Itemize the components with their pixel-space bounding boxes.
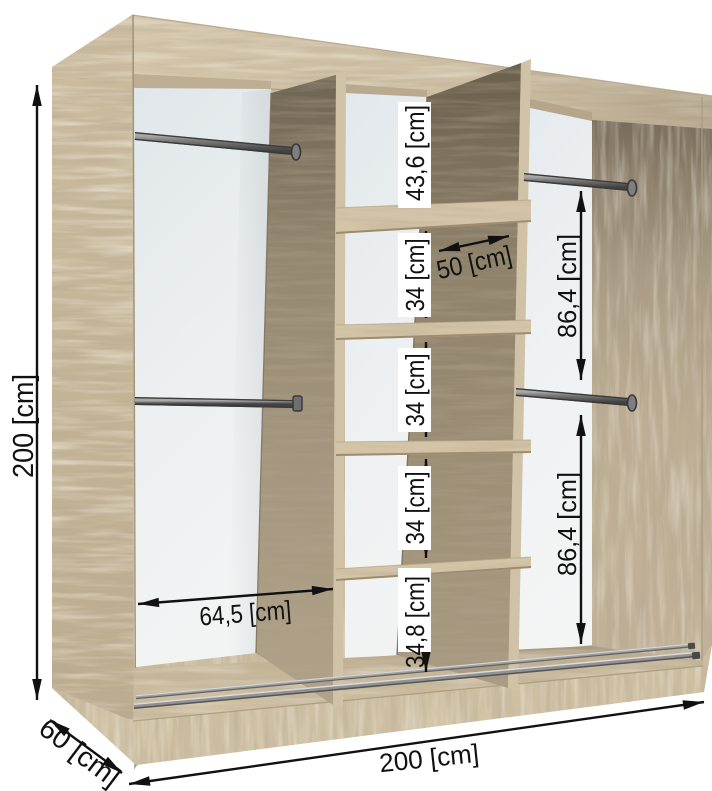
svg-text:86,4 [cm]: 86,4 [cm]: [552, 472, 582, 576]
svg-text:34 [cm]: 34 [cm]: [400, 354, 430, 427]
svg-text:34,8 [cm]: 34,8 [cm]: [400, 576, 430, 668]
svg-text:86,4 [cm]: 86,4 [cm]: [552, 234, 582, 338]
svg-text:43,6 [cm]: 43,6 [cm]: [400, 105, 430, 201]
svg-text:34 [cm]: 34 [cm]: [400, 472, 430, 545]
svg-text:34 [cm]: 34 [cm]: [400, 239, 430, 312]
svg-text:200 [cm]: 200 [cm]: [8, 374, 40, 478]
